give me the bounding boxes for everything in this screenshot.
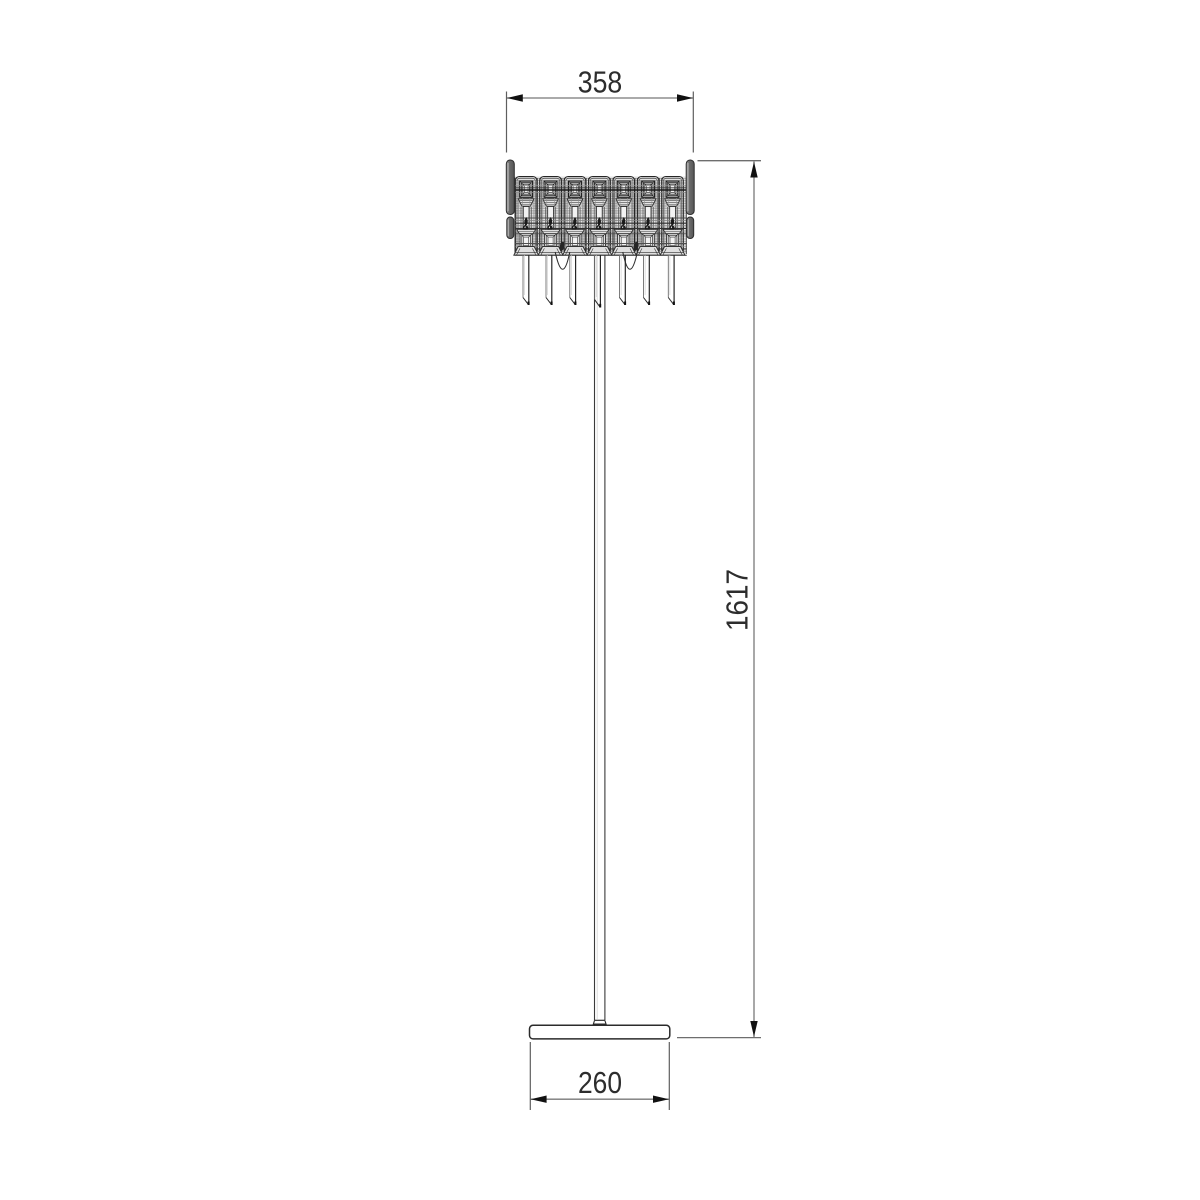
svg-text:1617: 1617 xyxy=(720,569,755,631)
svg-text:358: 358 xyxy=(578,65,623,100)
svg-text:260: 260 xyxy=(578,1065,622,1100)
